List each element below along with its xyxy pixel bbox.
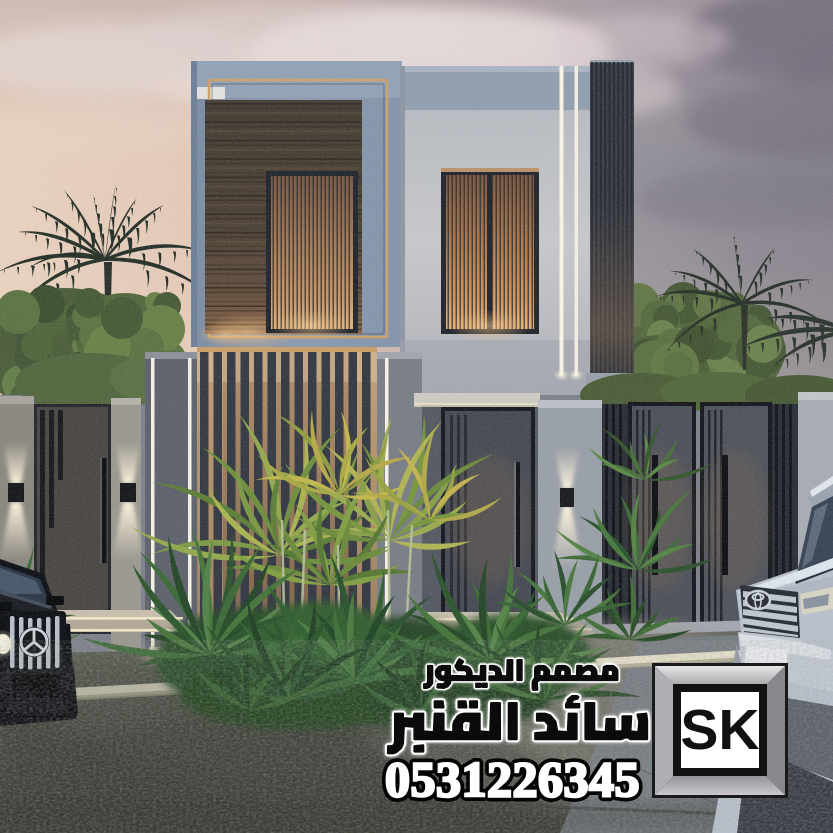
svg-text:0531226345: 0531226345 bbox=[385, 751, 640, 807]
svg-text:SK: SK bbox=[680, 698, 759, 762]
